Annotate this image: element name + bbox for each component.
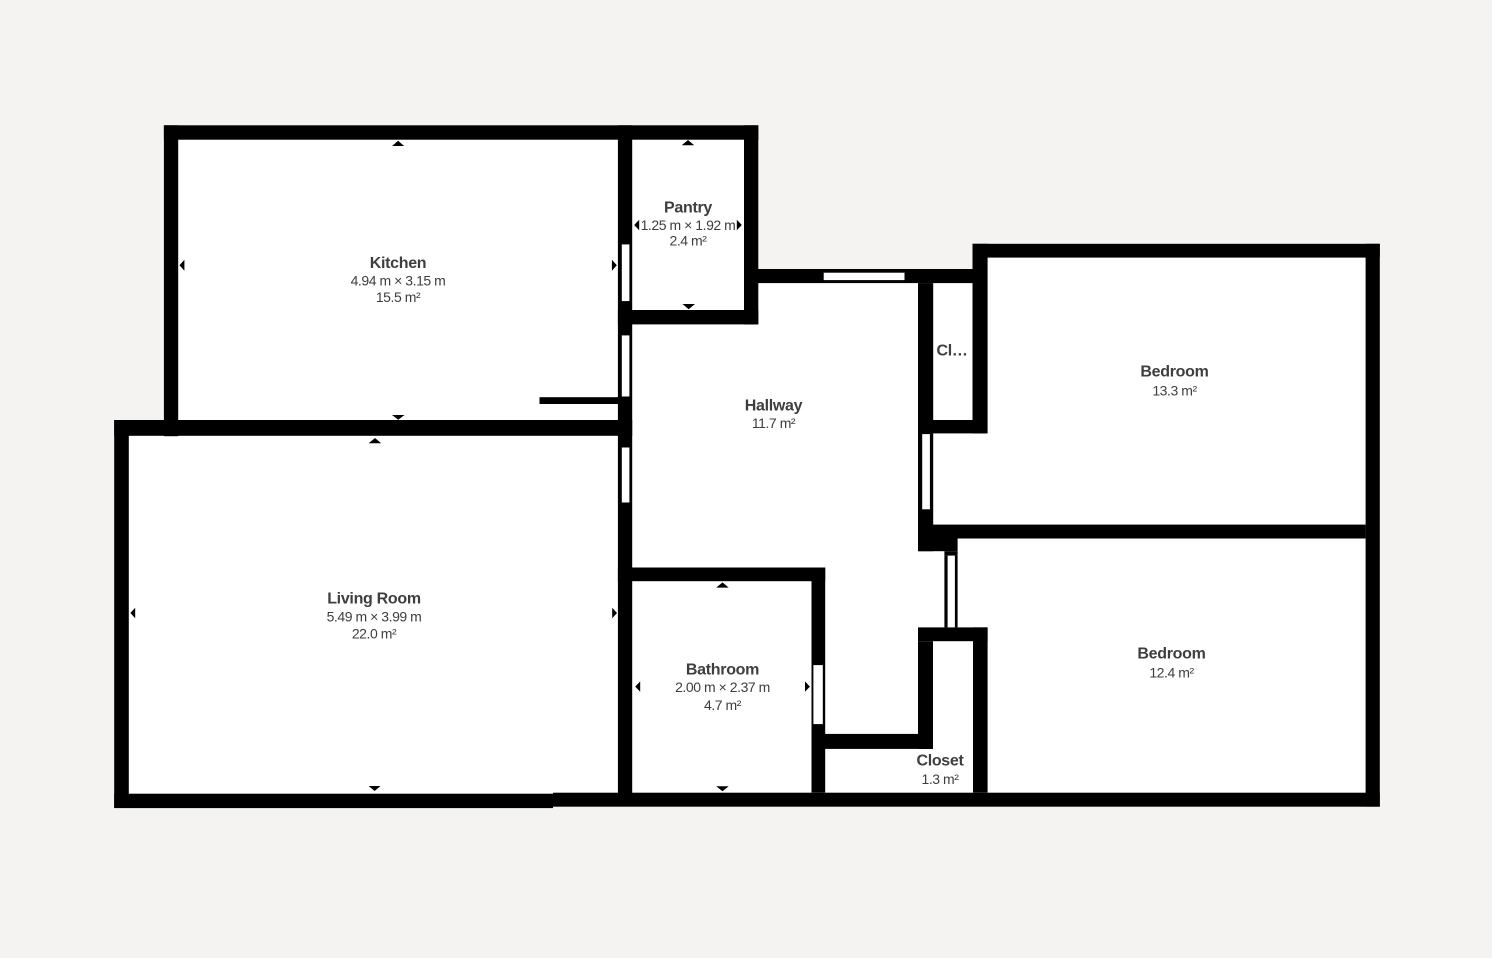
svg-text:1.25 m × 1.92 m: 1.25 m × 1.92 m (641, 217, 736, 233)
svg-text:2.00 m × 2.37 m: 2.00 m × 2.37 m (675, 679, 770, 695)
svg-text:22.0 m²: 22.0 m² (352, 626, 397, 642)
svg-text:1.3 m²: 1.3 m² (922, 771, 960, 787)
svg-text:Pantry: Pantry (664, 199, 712, 216)
svg-text:Bedroom: Bedroom (1140, 364, 1208, 381)
svg-text:12.4 m²: 12.4 m² (1149, 664, 1194, 680)
svg-text:Bathroom: Bathroom (686, 661, 759, 678)
svg-text:13.3 m²: 13.3 m² (1152, 383, 1197, 399)
svg-text:Closet: Closet (916, 753, 964, 770)
svg-text:4.7 m²: 4.7 m² (704, 697, 742, 713)
svg-text:5.49 m × 3.99 m: 5.49 m × 3.99 m (327, 609, 422, 625)
svg-text:11.7 m²: 11.7 m² (752, 415, 796, 431)
svg-text:Hallway: Hallway (745, 398, 803, 415)
svg-text:4.94 m × 3.15 m: 4.94 m × 3.15 m (351, 273, 446, 289)
svg-text:Bedroom: Bedroom (1137, 646, 1205, 663)
svg-text:15.5 m²: 15.5 m² (376, 289, 421, 305)
svg-text:Kitchen: Kitchen (370, 255, 427, 272)
svg-text:Living Room: Living Room (327, 591, 421, 608)
svg-text:2.4 m²: 2.4 m² (670, 232, 708, 248)
svg-text:Cl…: Cl… (936, 342, 967, 359)
